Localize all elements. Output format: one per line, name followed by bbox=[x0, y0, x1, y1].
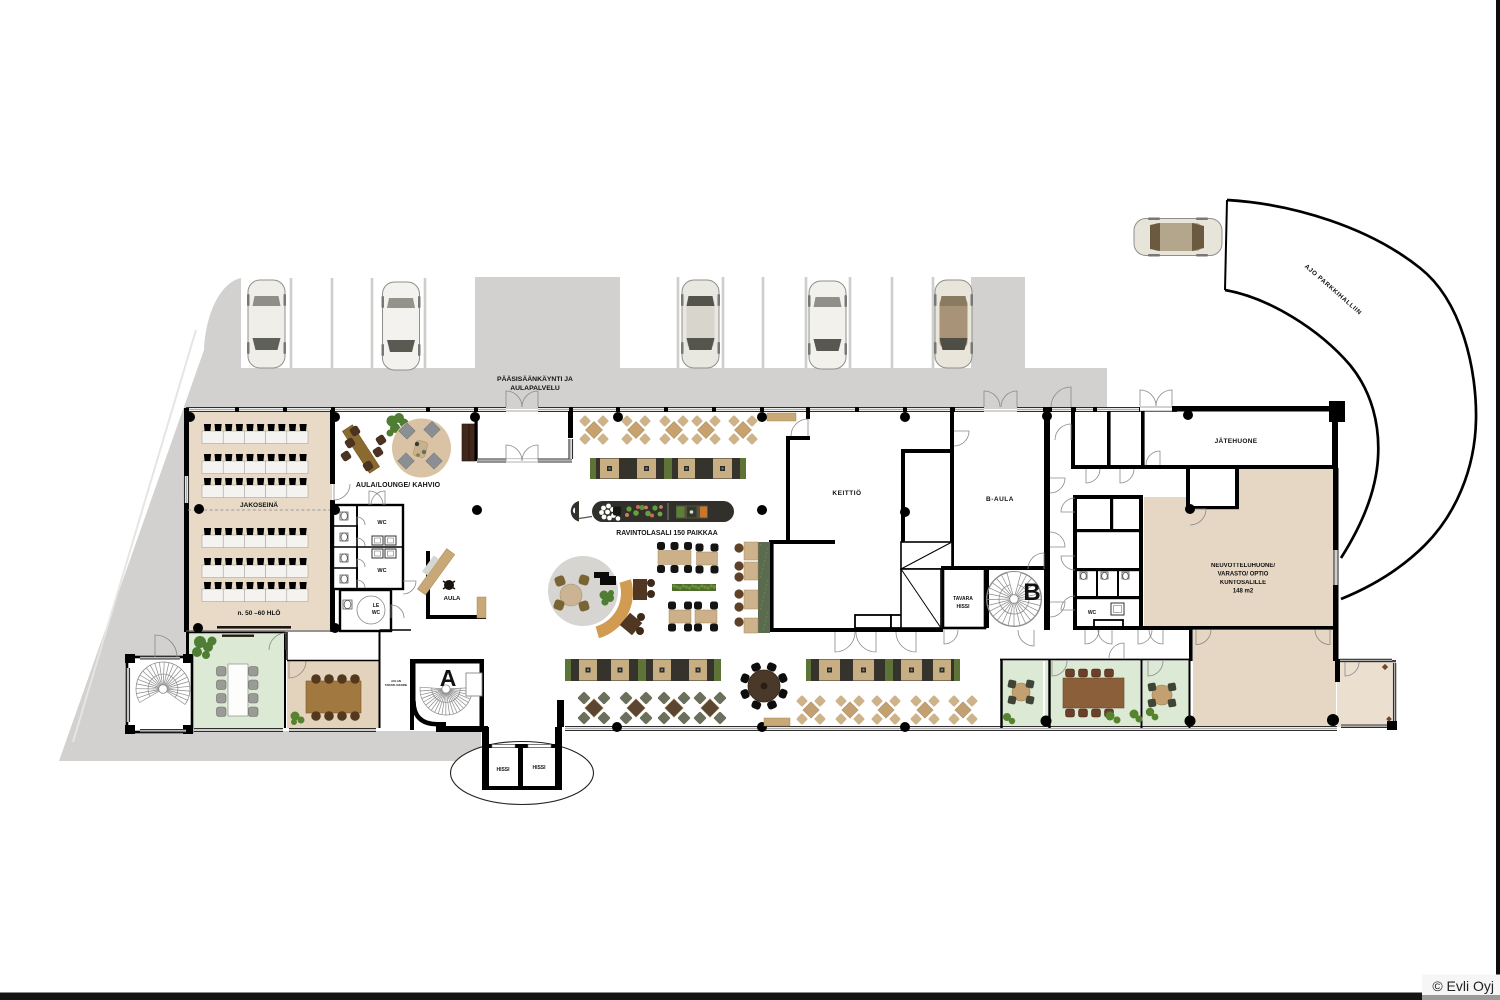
svg-text:NEUVOTTELUHUONE/: NEUVOTTELUHUONE/ bbox=[1211, 563, 1275, 569]
svg-text:148 m2: 148 m2 bbox=[1233, 589, 1254, 595]
svg-text:AULA/LOUNGE/ KAHVIO: AULA/LOUNGE/ KAHVIO bbox=[356, 482, 441, 489]
svg-text:VARASTO/ OPTIO: VARASTO/ OPTIO bbox=[1218, 572, 1269, 578]
svg-text:n. 50 –60 HLÖ: n. 50 –60 HLÖ bbox=[238, 608, 281, 617]
svg-text:© Evli Oyj: © Evli Oyj bbox=[1432, 978, 1494, 994]
svg-text:AJO PARKKIHALLIIN: AJO PARKKIHALLIIN bbox=[1303, 263, 1363, 316]
svg-text:WC: WC bbox=[1088, 610, 1097, 616]
svg-text:TARJOILUHUONE: TARJOILUHUONE bbox=[385, 683, 407, 687]
svg-text:WC: WC bbox=[377, 568, 386, 574]
svg-text:AULA: AULA bbox=[444, 596, 461, 602]
svg-text:HISSI: HISSI bbox=[532, 765, 546, 771]
svg-text:RAVINTOLASALI 150 PAIKKAA: RAVINTOLASALI 150 PAIKKAA bbox=[616, 530, 717, 537]
svg-text:B-AULA: B-AULA bbox=[986, 496, 1014, 503]
svg-text:PÄÄSISÄÄNKÄYNTI JA: PÄÄSISÄÄNKÄYNTI JA bbox=[497, 375, 573, 383]
svg-text:WC: WC bbox=[377, 520, 386, 526]
svg-text:JÄTEHUONE: JÄTEHUONE bbox=[1215, 437, 1258, 445]
svg-text:AULAN: AULAN bbox=[391, 679, 401, 683]
svg-text:KEITTIÖ: KEITTIÖ bbox=[832, 488, 861, 497]
svg-text:WC: WC bbox=[372, 610, 381, 616]
svg-text:KUNTOSALILLE: KUNTOSALILLE bbox=[1220, 580, 1266, 586]
svg-text:JAKOSEINÄ: JAKOSEINÄ bbox=[240, 501, 278, 509]
svg-text:A: A bbox=[440, 665, 457, 691]
svg-text:TAVARA: TAVARA bbox=[953, 596, 973, 602]
svg-text:HISSI: HISSI bbox=[496, 767, 510, 773]
svg-text:HISSI: HISSI bbox=[956, 604, 970, 610]
svg-text:LE: LE bbox=[373, 603, 380, 609]
svg-text:AULAPALVELU: AULAPALVELU bbox=[510, 385, 560, 392]
svg-text:B: B bbox=[1023, 579, 1040, 606]
